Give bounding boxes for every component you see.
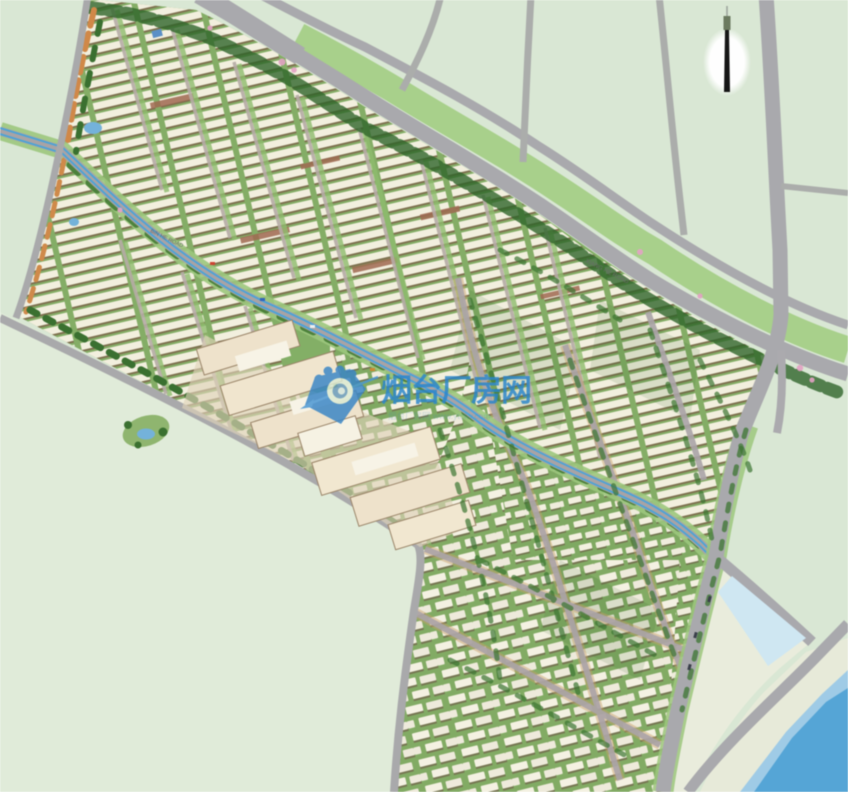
svg-text:烟台厂房网: 烟台厂房网 bbox=[381, 373, 531, 408]
svg-text:烟台厂房网 www.ytcfw.com: 烟台厂房网 www.ytcfw.com bbox=[388, 411, 490, 421]
